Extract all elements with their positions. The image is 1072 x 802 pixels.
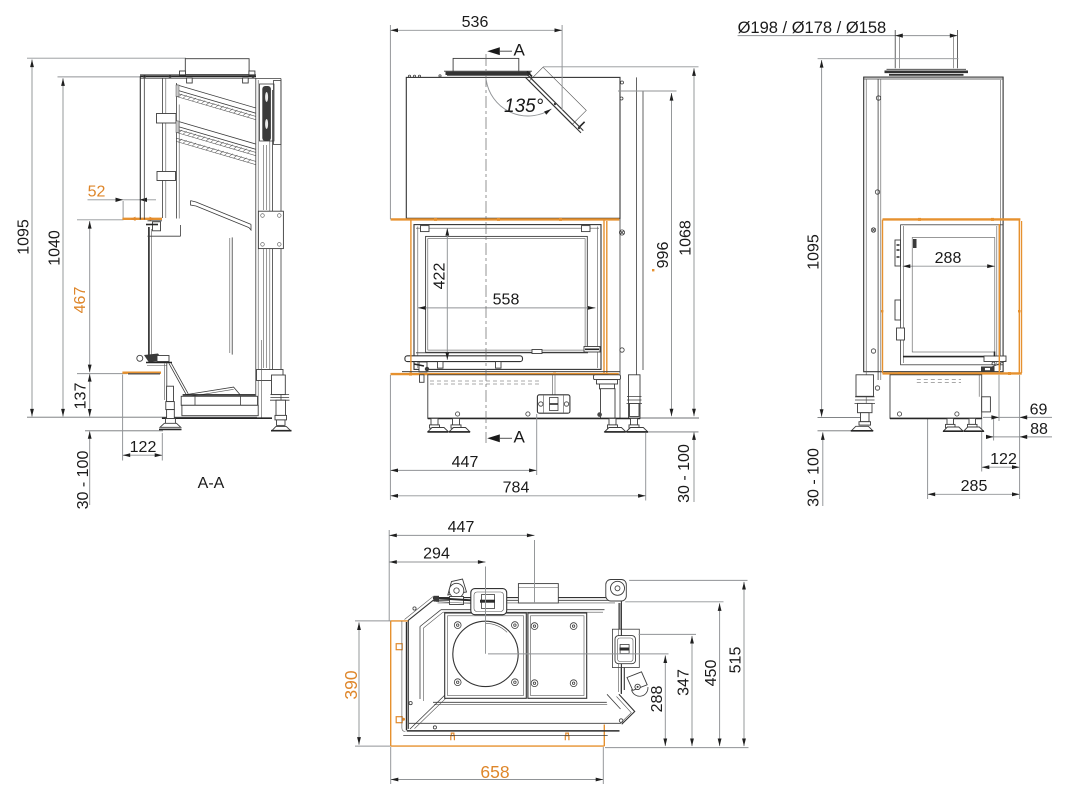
svg-text:30 - 100: 30 - 100: [806, 448, 823, 507]
svg-text:122: 122: [130, 439, 157, 456]
svg-text:422: 422: [432, 263, 449, 290]
svg-text:784: 784: [503, 479, 530, 496]
svg-text:137: 137: [73, 383, 90, 410]
svg-text:122: 122: [990, 451, 1017, 468]
svg-text:30 - 100: 30 - 100: [676, 444, 693, 503]
svg-text:294: 294: [423, 546, 450, 563]
svg-text:558: 558: [493, 292, 520, 309]
svg-text:288: 288: [649, 686, 666, 713]
svg-text:1040: 1040: [47, 230, 64, 266]
svg-text:450: 450: [703, 660, 720, 687]
svg-text:52: 52: [88, 184, 106, 201]
svg-text:447: 447: [448, 519, 475, 536]
svg-text:285: 285: [961, 478, 988, 495]
svg-text:447: 447: [452, 454, 479, 471]
svg-text:A: A: [514, 40, 526, 59]
svg-text:88: 88: [1030, 421, 1048, 438]
svg-text:A: A: [514, 427, 526, 446]
svg-text:A-A: A-A: [198, 475, 225, 492]
svg-text:30 - 100: 30 - 100: [75, 451, 92, 510]
svg-text:1095: 1095: [806, 234, 823, 270]
svg-text:Ø198 / Ø178 / Ø158: Ø198 / Ø178 / Ø158: [738, 19, 887, 37]
svg-text:467: 467: [72, 287, 89, 314]
svg-text:288: 288: [935, 250, 962, 267]
svg-text:347: 347: [676, 669, 693, 696]
svg-text:996: 996: [655, 242, 672, 269]
svg-text:1095: 1095: [16, 219, 33, 255]
svg-text:69: 69: [1030, 402, 1048, 419]
svg-text:536: 536: [462, 14, 489, 31]
svg-text:390: 390: [341, 670, 361, 699]
svg-text:1068: 1068: [678, 220, 695, 256]
svg-text:658: 658: [480, 762, 509, 782]
svg-text:515: 515: [728, 647, 745, 674]
svg-text:135°: 135°: [504, 96, 544, 117]
